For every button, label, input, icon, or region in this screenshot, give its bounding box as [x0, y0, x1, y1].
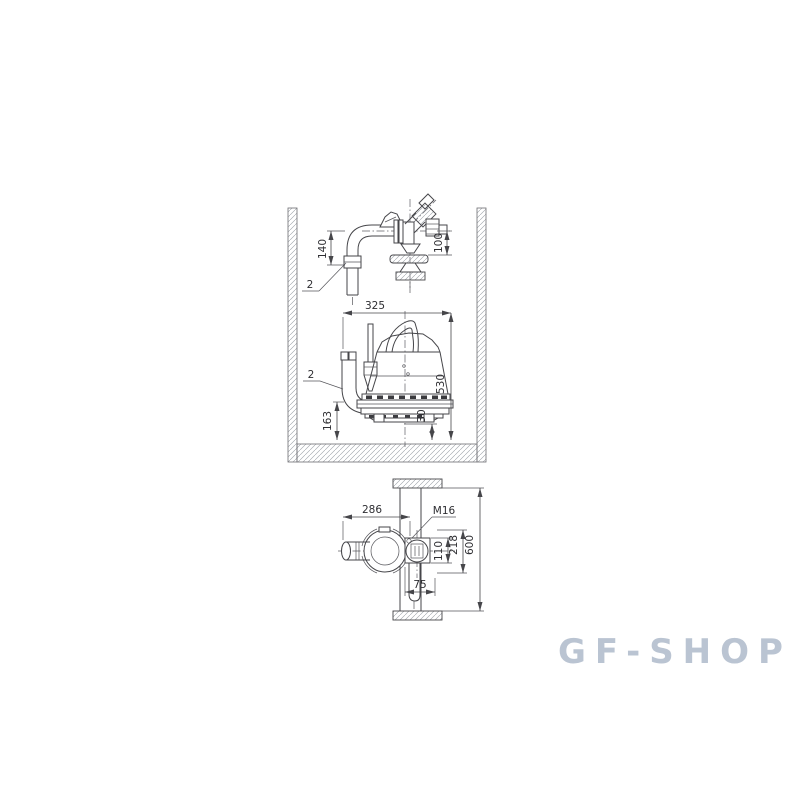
dimension-140: 140: [317, 231, 345, 265]
callout-label-2: 2: [308, 369, 315, 381]
pit-left-wall: [288, 208, 297, 462]
dimension-530: 530: [435, 313, 451, 440]
callout-m16: M16: [412, 505, 456, 538]
discharge-flange-plan: [405, 538, 430, 563]
pump-foot-left: [374, 414, 384, 422]
plan-wall-top: [393, 479, 442, 488]
pipe-bend: [347, 225, 394, 250]
pump-volute: [357, 394, 453, 422]
dim-label-100: 100: [433, 233, 445, 253]
valve-handwheel: [390, 244, 428, 293]
callout-2-pump: 2: [303, 369, 343, 389]
callout-label-m16: M16: [433, 505, 456, 517]
gf-shop-watermark: GF-SHOP: [558, 632, 792, 672]
dim-label-530: 530: [435, 374, 447, 394]
pipework-side-view: 140 100 2: [302, 194, 452, 305]
dim-label-163: 163: [322, 411, 334, 431]
dim-label-75: 75: [413, 579, 426, 591]
vertical-discharge-pipe: [344, 250, 361, 305]
callout-2-pipework: 2: [302, 263, 346, 291]
dim-label-110: 110: [433, 541, 445, 561]
callout-label-2: 2: [307, 279, 314, 291]
cable-gland-plan: [379, 527, 390, 532]
outlet-end-fitting: [439, 225, 447, 234]
dim-label-600: 600: [464, 535, 476, 555]
dimension-163: 163: [322, 402, 344, 440]
dim-label-140: 140: [317, 239, 329, 259]
dim-label-218: 218: [448, 535, 460, 555]
pit-right-wall: [477, 208, 486, 462]
pump-plan-view: 286 M16 110 218 600: [338, 479, 484, 620]
pump-body-plan: [362, 527, 408, 573]
dim-label-30: 30: [416, 409, 428, 422]
plan-wall-bottom: [393, 611, 442, 620]
dimension-325: 325: [343, 300, 451, 349]
technical-drawing: 140 100 2: [0, 0, 800, 800]
pit-floor: [297, 444, 477, 462]
pump-side-view: 325 530 163 30 2: [303, 300, 453, 447]
dim-label-325: 325: [365, 300, 385, 312]
screenshot-canvas: 140 100 2: [0, 0, 800, 800]
dim-label-286: 286: [362, 504, 382, 516]
